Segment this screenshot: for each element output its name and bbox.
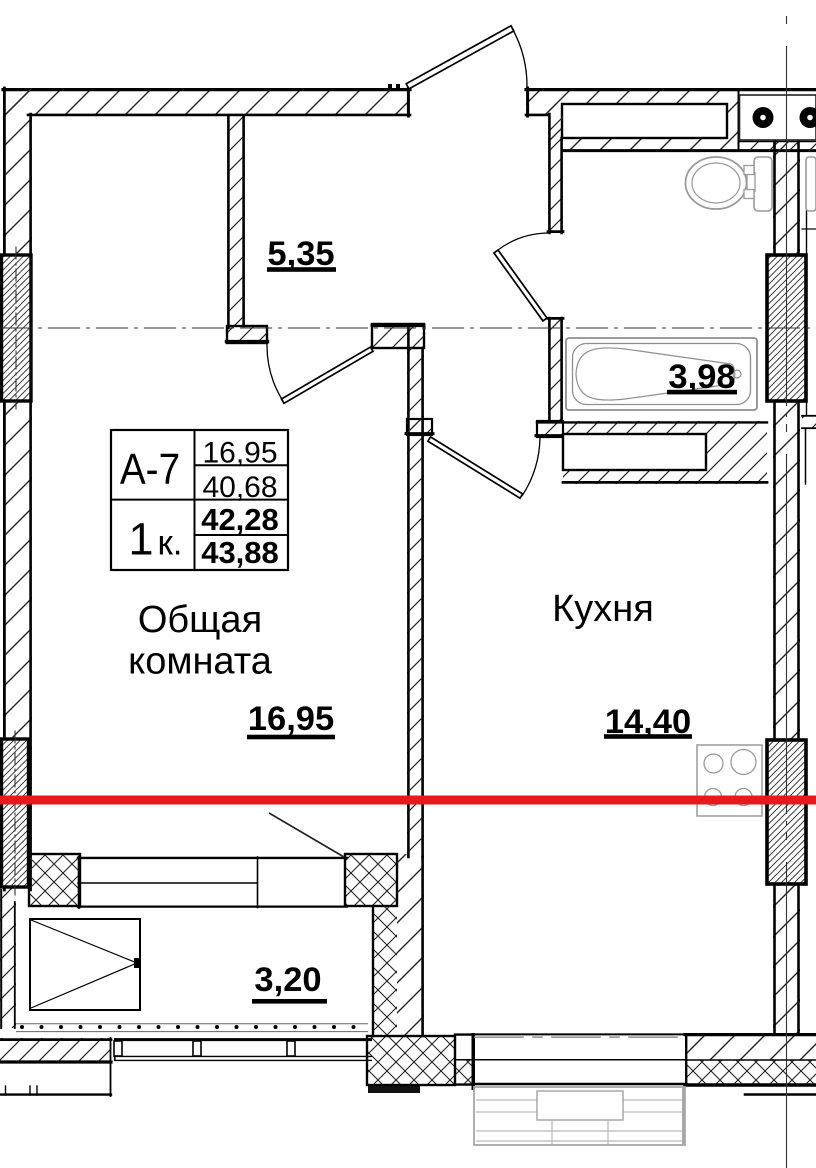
svg-text:Кухня: Кухня	[552, 588, 654, 630]
svg-text:42,28: 42,28	[201, 502, 279, 537]
svg-text:Общая: Общая	[138, 599, 262, 641]
svg-text:А-7: А-7	[120, 444, 180, 494]
svg-text:16,95: 16,95	[248, 700, 334, 738]
svg-text:3,20: 3,20	[254, 961, 321, 999]
svg-text:к.: к.	[157, 524, 182, 563]
svg-text:43,88: 43,88	[201, 535, 279, 570]
svg-text:1: 1	[128, 514, 153, 565]
svg-text:40,68: 40,68	[202, 471, 277, 504]
svg-text:комната: комната	[128, 641, 273, 683]
svg-text:16,95: 16,95	[202, 436, 277, 469]
